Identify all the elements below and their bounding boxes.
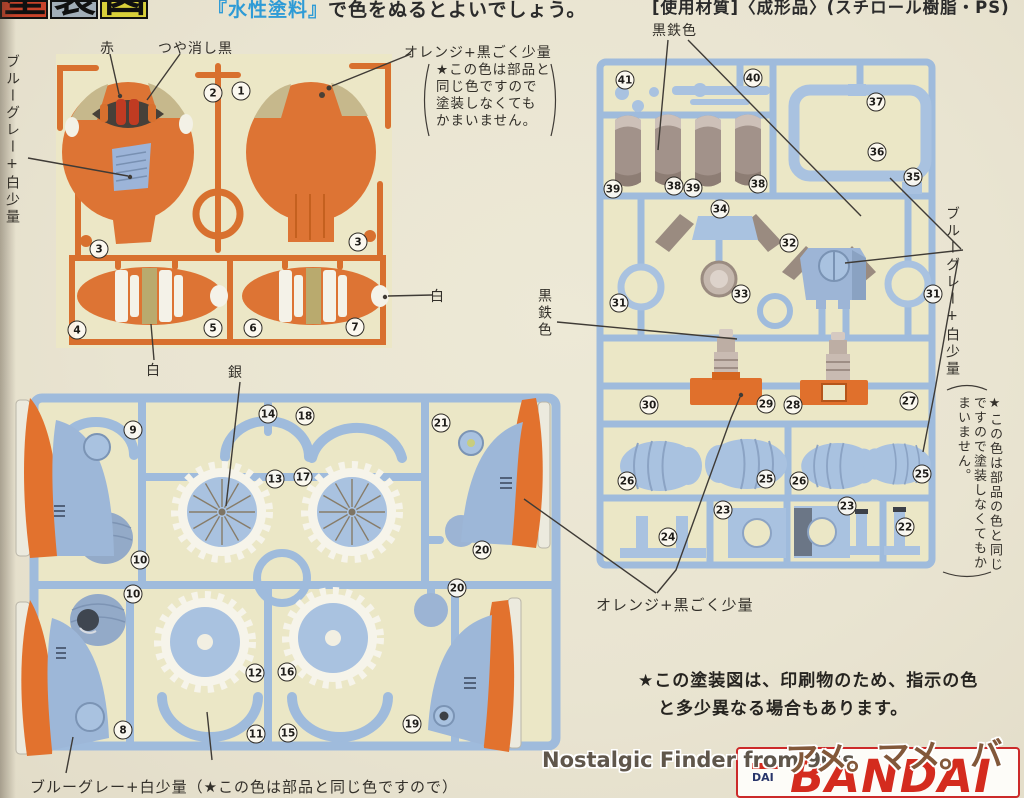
part-number-badge: 39 — [604, 180, 623, 199]
part-number-badge: 8 — [114, 721, 133, 740]
part-number-badge: 10 — [124, 585, 143, 604]
title-tile-3: 図 — [100, 0, 148, 19]
part-number-badge: 25 — [913, 465, 932, 484]
callout-iron-black-top: 黒鉄色 — [652, 20, 697, 40]
print-disclaimer-line2: と多少異なる場合もあります。 — [658, 694, 908, 719]
callout-matte-black: つや消し黒 — [158, 38, 233, 58]
bandai-logo-small-text: DAI — [752, 771, 774, 784]
part-number-badge: 1 — [232, 82, 251, 101]
part-number-badge: 19 — [403, 715, 422, 734]
part-number-badge: 23 — [838, 497, 857, 516]
part-number-badge: 29 — [757, 395, 776, 414]
callout-orange-black-top-note: ★この色は部品と 同じ色ですので 塗装しなくても かまいません。 — [436, 62, 551, 130]
callout-orange-black-bottom: オレンジ+黒ごく少量 — [596, 594, 754, 615]
part-number-badge: 35 — [904, 168, 923, 187]
callout-blue-gray-right-note: ★この色は部品の色と同じですので塗装しなくてもかまいません。 — [942, 396, 1002, 572]
part-number-badge: 25 — [757, 470, 776, 489]
part-number-badge: 12 — [246, 664, 265, 683]
orange-sprue — [56, 54, 392, 348]
part-number-badge: 10 — [131, 551, 150, 570]
part-number-badge: 31 — [924, 285, 943, 304]
part-number-badge: 41 — [616, 71, 635, 90]
right-blue-sprue — [600, 62, 932, 565]
part-number-badge: 20 — [473, 541, 492, 560]
part-number-badge: 13 — [266, 470, 285, 489]
callout-white-stripe: 白 — [146, 360, 161, 380]
material-note: [使用材質]〈成形品〉(スチロール樹脂・PS) — [652, 0, 1010, 18]
part-number-badge: 21 — [432, 414, 451, 433]
part-number-badge: 11 — [247, 725, 266, 744]
print-disclaimer-line1: ★この塗装図は、印刷物のため、指示の色 — [638, 666, 978, 691]
left-blue-sprue — [16, 398, 556, 756]
part-number-badge: 24 — [659, 528, 678, 547]
part-number-badge: 26 — [790, 472, 809, 491]
part-number-badge: 26 — [618, 472, 637, 491]
part-number-badge: 2 — [204, 84, 223, 103]
part-number-badge: 31 — [610, 294, 629, 313]
part-number-badge: 14 — [259, 405, 278, 424]
part-number-badge: 7 — [346, 318, 365, 337]
callout-blue-gray-bottom: ブルーグレー+白少量（★この色は部品と同じ色ですので） — [30, 776, 458, 797]
part-number-badge: 30 — [640, 396, 659, 415]
part-number-badge: 22 — [896, 518, 915, 537]
callout-silver: 銀 — [228, 362, 243, 382]
callout-red: 赤 — [100, 38, 115, 58]
title-tile-1: 塗 — [0, 0, 48, 19]
part-number-badge: 23 — [714, 501, 733, 520]
title-tile-2: 装 — [50, 0, 98, 19]
part-number-badge: 37 — [867, 93, 886, 112]
watermark-logo: アメ。マメ。バー — [785, 727, 1024, 798]
part-number-badge: 32 — [780, 234, 799, 253]
part-number-badge: 20 — [448, 579, 467, 598]
part-number-badge: 33 — [732, 285, 751, 304]
part-number-badge: 40 — [744, 69, 763, 88]
part-number-badge: 15 — [279, 724, 298, 743]
part-number-badge: 5 — [204, 319, 223, 338]
callout-white-nose: 白 — [430, 286, 445, 306]
part-number-badge: 17 — [294, 468, 313, 487]
part-number-badge: 36 — [868, 143, 887, 162]
part-number-badge: 39 — [684, 179, 703, 198]
part-number-badge: 38 — [749, 175, 768, 194]
callout-blue-gray-right: ブルーグレー+白少量 — [942, 206, 962, 398]
part-number-badge: 9 — [124, 421, 143, 440]
part-number-badge: 18 — [296, 407, 315, 426]
paint-type-note: 『水性塗料』で色をぬるとよいでしょう。 — [208, 0, 586, 22]
part-number-badge: 3 — [349, 233, 368, 252]
scanned-instruction-page: 塗 装 図 『水性塗料』で色をぬるとよいでしょう。 [使用材質]〈成形品〉(スチ… — [0, 0, 1024, 798]
callout-iron-black-mid: 黒鉄色 — [534, 288, 554, 352]
part-number-badge: 4 — [68, 321, 87, 340]
callout-orange-black-top: オレンジ+黒ごく少量 — [404, 42, 552, 62]
part-number-badge: 16 — [278, 663, 297, 682]
part-number-badge: 28 — [784, 396, 803, 415]
callout-blue-gray-left: ブルーグレー+白少量 — [2, 54, 22, 264]
part-number-badge: 6 — [244, 319, 263, 338]
part-number-badge: 27 — [900, 392, 919, 411]
part-number-badge: 38 — [665, 177, 684, 196]
part-number-badge: 34 — [711, 200, 730, 219]
part-number-badge: 3 — [90, 240, 109, 259]
